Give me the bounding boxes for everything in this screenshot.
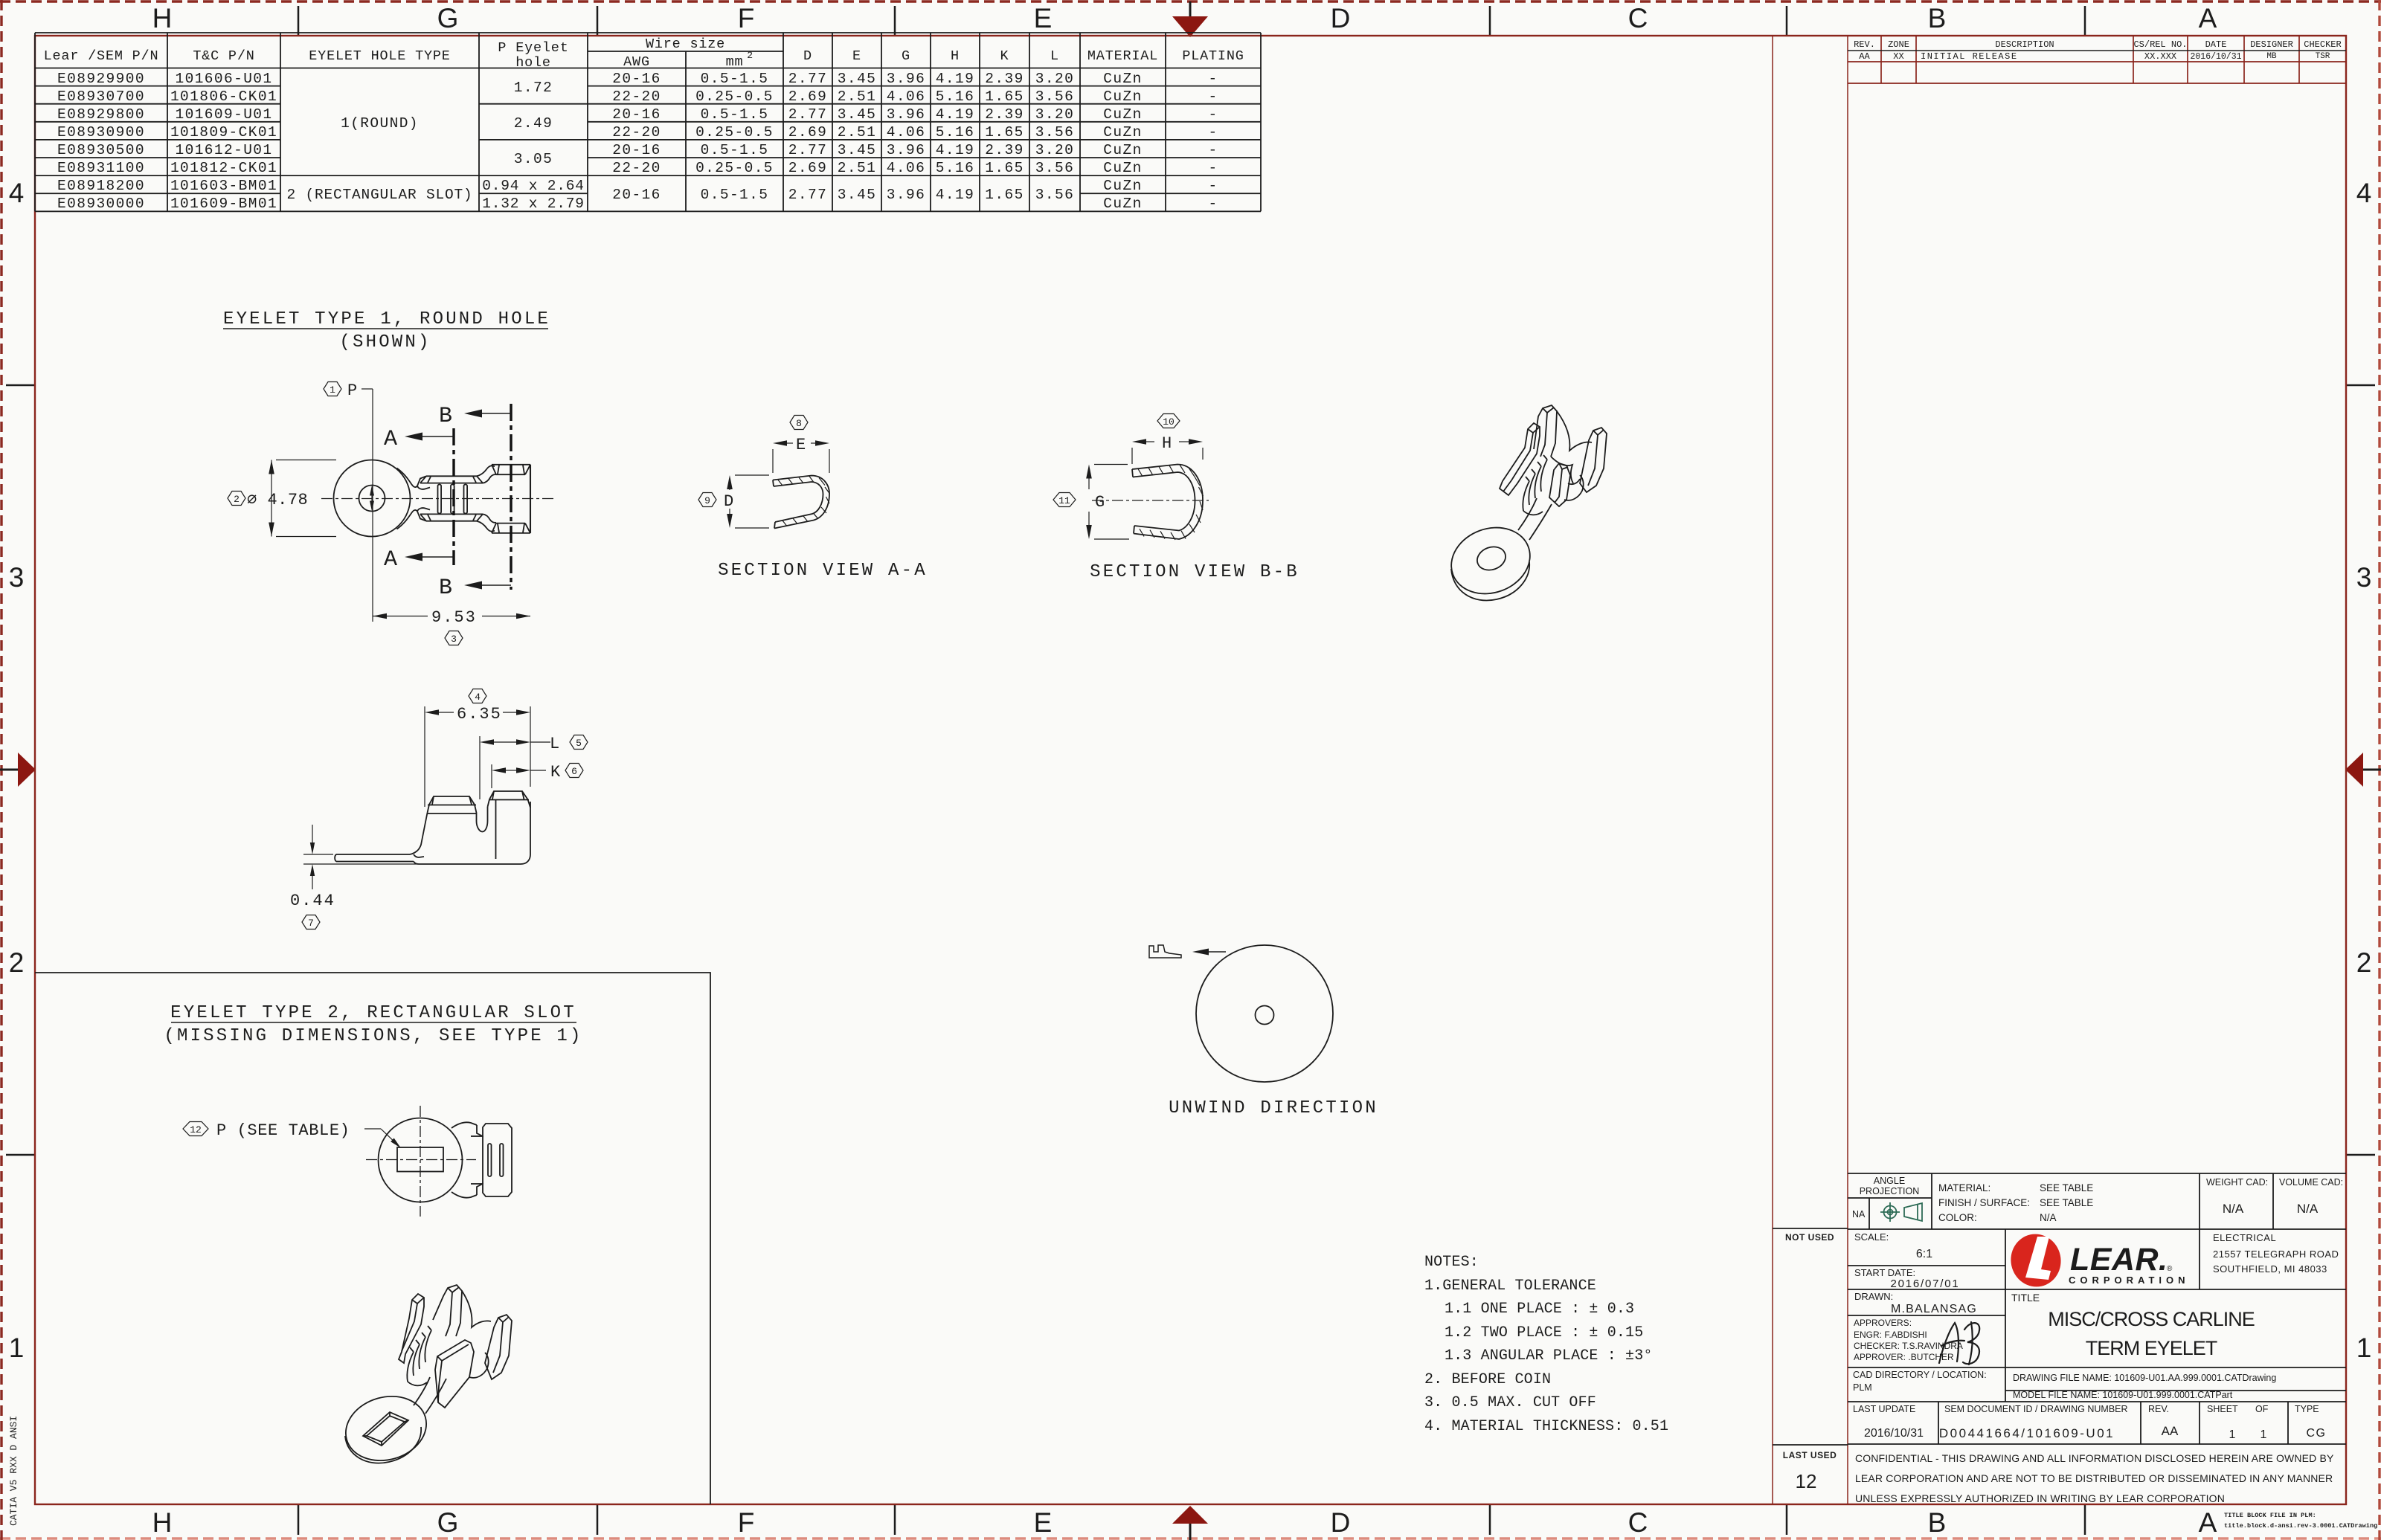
svg-text:2.77: 2.77 [788, 106, 827, 123]
svg-text:CuZn: CuZn [1103, 88, 1142, 105]
svg-text:6: 6 [571, 766, 577, 777]
svg-text:H: H [951, 48, 960, 64]
svg-text:3.56: 3.56 [1035, 88, 1074, 105]
svg-text:CHECKER: T.S.RAVINDRA: CHECKER: T.S.RAVINDRA [1854, 1341, 1963, 1351]
svg-text:INITIAL RELEASE: INITIAL RELEASE [1921, 51, 2018, 62]
svg-text:MISC/CROSS CARLINE: MISC/CROSS CARLINE [2048, 1308, 2255, 1330]
svg-text:3.20: 3.20 [1035, 71, 1074, 87]
svg-text:3.96: 3.96 [887, 106, 925, 123]
svg-text:1.1 ONE PLACE : ± 0.3: 1.1 ONE PLACE : ± 0.3 [1445, 1301, 1634, 1318]
svg-text:4: 4 [475, 692, 481, 703]
svg-text:2.49: 2.49 [514, 115, 553, 132]
svg-text:G: G [437, 3, 459, 33]
svg-text:G: G [1095, 493, 1105, 512]
svg-text:1.65: 1.65 [985, 88, 1024, 105]
svg-text:OF: OF [2255, 1404, 2269, 1414]
svg-text:APPROVERS:: APPROVERS: [1854, 1318, 1912, 1328]
svg-text:2016/10/31: 2016/10/31 [1864, 1427, 1924, 1440]
svg-text:0.25-0.5: 0.25-0.5 [695, 124, 774, 141]
svg-text:3: 3 [2356, 562, 2372, 593]
svg-text:CORPORATION: CORPORATION [2069, 1275, 2190, 1286]
svg-text:E: E [852, 48, 861, 64]
svg-text:B: B [439, 404, 452, 429]
svg-text:N/A: N/A [2297, 1202, 2319, 1216]
svg-text:E: E [1034, 3, 1053, 33]
svg-text:2.39: 2.39 [985, 106, 1024, 123]
svg-text:F: F [738, 3, 755, 33]
svg-text:101612-U01: 101612-U01 [175, 142, 272, 158]
svg-text:K: K [550, 763, 561, 782]
svg-text:LAST UPDATE: LAST UPDATE [1853, 1404, 1915, 1414]
svg-text:L: L [550, 735, 559, 753]
svg-text:CHECKER: CHECKER [2304, 39, 2341, 50]
svg-text:5.16: 5.16 [936, 124, 974, 141]
svg-text:ANGLE: ANGLE [1874, 1176, 1905, 1186]
svg-text:4. MATERIAL THICKNESS: 0.51: 4. MATERIAL THICKNESS: 0.51 [1424, 1418, 1668, 1435]
svg-text:MATERIAL: MATERIAL [1087, 48, 1158, 64]
svg-text:1.2 TWO PLACE : ± 0.15: 1.2 TWO PLACE : ± 0.15 [1445, 1324, 1643, 1341]
svg-text:PROJECTION: PROJECTION [1860, 1186, 1920, 1196]
svg-text:2.69: 2.69 [788, 124, 827, 141]
svg-text:-: - [1208, 196, 1218, 212]
svg-text:CuZn: CuZn [1103, 160, 1142, 176]
svg-text:3.45: 3.45 [838, 187, 876, 203]
svg-text:E08930500: E08930500 [57, 142, 145, 158]
svg-text:(SHOWN): (SHOWN) [339, 332, 431, 352]
svg-text:DESIGNER: DESIGNER [2250, 39, 2293, 50]
svg-text:D00441664/101609-U01: D00441664/101609-U01 [1939, 1426, 2115, 1440]
svg-text:(MISSING DIMENSIONS, SEE TYPE: (MISSING DIMENSIONS, SEE TYPE 1) [164, 1026, 582, 1046]
svg-text:1.65: 1.65 [985, 187, 1024, 203]
svg-text:N/A: N/A [2223, 1202, 2244, 1216]
svg-text:∅ 4.78: ∅ 4.78 [247, 491, 308, 509]
svg-text:B: B [439, 576, 452, 601]
svg-text:CuZn: CuZn [1103, 178, 1142, 194]
svg-text:4.06: 4.06 [887, 88, 925, 105]
svg-text:TSR: TSR [2316, 52, 2330, 61]
svg-text:3.45: 3.45 [838, 106, 876, 123]
svg-text:CuZn: CuZn [1103, 106, 1142, 123]
svg-text:A: A [2199, 3, 2217, 33]
svg-text:2.69: 2.69 [788, 160, 827, 176]
svg-text:CONFIDENTIAL - THIS DRAWING AN: CONFIDENTIAL - THIS DRAWING AND ALL INFO… [1855, 1452, 2334, 1464]
svg-text:4: 4 [9, 178, 25, 208]
svg-text:TITLE: TITLE [2011, 1292, 2040, 1304]
svg-text:3.45: 3.45 [838, 142, 876, 158]
svg-text:2.51: 2.51 [838, 160, 876, 176]
svg-text:G: G [902, 48, 910, 64]
svg-text:101603-BM01: 101603-BM01 [170, 178, 277, 194]
svg-text:2.39: 2.39 [985, 142, 1024, 158]
svg-text:1.65: 1.65 [985, 160, 1024, 176]
svg-text:PLM: PLM [1853, 1382, 1872, 1393]
svg-text:1: 1 [2229, 1428, 2236, 1441]
svg-text:EYELET TYPE 2, RECTANGULAR SLO: EYELET TYPE 2, RECTANGULAR SLOT [170, 1003, 576, 1023]
svg-text:E08931100: E08931100 [57, 160, 145, 176]
svg-text:T&C P/N: T&C P/N [193, 48, 254, 64]
svg-text:K: K [1000, 48, 1009, 64]
svg-text:MATERIAL:: MATERIAL: [1938, 1182, 1990, 1193]
svg-text:0.5-1.5: 0.5-1.5 [701, 106, 769, 123]
svg-text:9: 9 [704, 495, 710, 506]
svg-text:20-16: 20-16 [612, 71, 661, 87]
svg-text:SEM DOCUMENT ID / DRAWING NUMB: SEM DOCUMENT ID / DRAWING NUMBER [1944, 1404, 2128, 1414]
svg-text:D: D [1331, 1507, 1351, 1538]
svg-text:4.19: 4.19 [936, 106, 974, 123]
svg-text:A: A [384, 547, 397, 573]
svg-text:PLATING: PLATING [1182, 48, 1244, 64]
svg-text:4: 4 [2356, 178, 2372, 208]
svg-text:1.3 ANGULAR PLACE : ±3°: 1.3 ANGULAR PLACE : ±3° [1445, 1347, 1653, 1365]
svg-text:1(ROUND): 1(ROUND) [341, 115, 419, 132]
svg-text:START DATE:: START DATE: [1854, 1267, 1915, 1278]
svg-text:D: D [724, 492, 733, 511]
svg-text:UNLESS EXPRESSLY AUTHORIZED IN: UNLESS EXPRESSLY AUTHORIZED IN WRITING B… [1855, 1492, 2225, 1504]
svg-text:C: C [1628, 1507, 1648, 1538]
svg-text:G: G [437, 1507, 459, 1538]
svg-text:SEE TABLE: SEE TABLE [2040, 1182, 2093, 1193]
svg-text:7: 7 [308, 918, 314, 929]
svg-text:L: L [1050, 48, 1059, 64]
svg-text:MB: MB [2266, 52, 2277, 61]
svg-text:101806-CK01: 101806-CK01 [170, 88, 277, 105]
svg-text:-: - [1208, 106, 1218, 123]
svg-text:E08929900: E08929900 [57, 71, 145, 87]
svg-text:UNWIND DIRECTION: UNWIND DIRECTION [1169, 1098, 1378, 1118]
svg-text:4.19: 4.19 [936, 71, 974, 87]
svg-text:1.65: 1.65 [985, 124, 1024, 141]
svg-text:DRAWING FILE NAME: 101609-U01.: DRAWING FILE NAME: 101609-U01.AA.999.000… [2013, 1373, 2276, 1383]
svg-text:0.25-0.5: 0.25-0.5 [695, 160, 774, 176]
svg-text:XX.XXX: XX.XXX [2144, 51, 2176, 62]
svg-text:101809-CK01: 101809-CK01 [170, 124, 277, 141]
svg-text:3.20: 3.20 [1035, 142, 1074, 158]
svg-text:1.GENERAL TOLERANCE: 1.GENERAL TOLERANCE [1424, 1278, 1596, 1295]
svg-text:5.16: 5.16 [936, 160, 974, 176]
svg-text:SHEET: SHEET [2207, 1404, 2238, 1414]
svg-text:2.77: 2.77 [788, 71, 827, 87]
svg-text:E: E [796, 436, 806, 454]
svg-text:-: - [1208, 142, 1218, 158]
svg-text:CAD DIRECTORY / LOCATION:: CAD DIRECTORY / LOCATION: [1853, 1370, 1987, 1380]
svg-text:2.77: 2.77 [788, 187, 827, 203]
svg-text:8: 8 [796, 418, 802, 429]
svg-text:LAST USED: LAST USED [1783, 1450, 1837, 1460]
svg-text:REV.: REV. [2148, 1404, 2169, 1414]
svg-text:22-20: 22-20 [612, 88, 661, 105]
svg-text:22-20: 22-20 [612, 124, 661, 141]
svg-text:NOT USED: NOT USED [1785, 1232, 1834, 1243]
svg-text:FINISH / SURFACE:: FINISH / SURFACE: [1938, 1197, 2030, 1208]
svg-text:SECTION VIEW B-B: SECTION VIEW B-B [1090, 562, 1299, 582]
svg-text:REV.: REV. [1854, 39, 1875, 50]
svg-text:P Eyelet: P Eyelet [498, 40, 568, 56]
svg-text:2.77: 2.77 [788, 142, 827, 158]
svg-text:-: - [1208, 160, 1218, 176]
svg-text:®: ® [2167, 1265, 2173, 1273]
svg-text:Lear /SEM P/N: Lear /SEM P/N [44, 48, 159, 64]
svg-text:E08930900: E08930900 [57, 124, 145, 141]
svg-text:NOTES:: NOTES: [1424, 1254, 1479, 1271]
svg-text:CG: CG [2307, 1427, 2327, 1440]
svg-text:SECTION VIEW A-A: SECTION VIEW A-A [718, 561, 928, 581]
svg-text:NA: NA [1852, 1209, 1866, 1220]
svg-text:3.45: 3.45 [838, 71, 876, 87]
svg-text:2 (RECTANGULAR SLOT): 2 (RECTANGULAR SLOT) [286, 187, 472, 203]
svg-text:CuZn: CuZn [1103, 142, 1142, 158]
svg-text:2: 2 [9, 947, 25, 978]
svg-text:2. BEFORE COIN: 2. BEFORE COIN [1424, 1371, 1551, 1388]
svg-text:4.06: 4.06 [887, 160, 925, 176]
svg-text:101609-BM01: 101609-BM01 [170, 196, 277, 212]
svg-text:0.5-1.5: 0.5-1.5 [701, 142, 769, 158]
svg-text:D: D [803, 48, 812, 64]
svg-text:DESCRIPTION: DESCRIPTION [1995, 39, 2054, 50]
svg-text:3: 3 [9, 562, 25, 593]
svg-text:VOLUME CAD:: VOLUME CAD: [2279, 1177, 2343, 1188]
svg-text:EYELET HOLE TYPE: EYELET HOLE TYPE [309, 48, 450, 64]
svg-text:20-16: 20-16 [612, 106, 661, 123]
svg-text:3: 3 [451, 634, 457, 645]
svg-text:E08918200: E08918200 [57, 178, 145, 194]
svg-text:0.44: 0.44 [290, 892, 335, 910]
svg-text:1: 1 [9, 1333, 25, 1363]
svg-text:P (SEE TABLE): P (SEE TABLE) [216, 1121, 350, 1140]
svg-text:XX: XX [1893, 51, 1903, 62]
svg-text:101812-CK01: 101812-CK01 [170, 160, 277, 176]
svg-text:2: 2 [234, 494, 240, 505]
svg-text:F: F [738, 1507, 755, 1538]
svg-text:COLOR:: COLOR: [1938, 1212, 1977, 1223]
svg-text:2016/10/31: 2016/10/31 [2190, 52, 2241, 62]
svg-text:CATIA V5 RXX D ANSI: CATIA V5 RXX D ANSI [8, 1416, 19, 1526]
svg-text:20-16: 20-16 [612, 187, 661, 203]
svg-text:4.19: 4.19 [936, 142, 974, 158]
svg-text:2.39: 2.39 [985, 71, 1024, 87]
svg-text:DRAWN:: DRAWN: [1854, 1291, 1893, 1302]
svg-text:SEE TABLE: SEE TABLE [2040, 1197, 2093, 1208]
svg-text:title.block.d-ansi.rev-3.0001.: title.block.d-ansi.rev-3.0001.CATDrawing [2224, 1522, 2377, 1530]
svg-text:6:1: 6:1 [1916, 1248, 1932, 1260]
svg-text:M.BALANSAG: M.BALANSAG [1891, 1303, 1977, 1315]
svg-text:LEAR CORPORATION AND ARE NOT T: LEAR CORPORATION AND ARE NOT TO BE DISTR… [1855, 1472, 2333, 1484]
svg-text:10: 10 [1163, 416, 1175, 428]
svg-text:Wire size: Wire size [646, 36, 725, 52]
svg-text:21557 TELEGRAPH ROAD: 21557 TELEGRAPH ROAD [2213, 1249, 2339, 1260]
svg-text:E: E [1034, 1507, 1053, 1538]
svg-text:E08930000: E08930000 [57, 196, 145, 212]
svg-text:TERM EYELET: TERM EYELET [2086, 1337, 2217, 1359]
svg-text:N/A: N/A [2040, 1212, 2057, 1223]
svg-text:1: 1 [330, 384, 335, 396]
svg-text:TYPE: TYPE [2295, 1404, 2319, 1414]
svg-text:D: D [1331, 3, 1351, 33]
svg-text:2016/07/01: 2016/07/01 [1890, 1278, 1959, 1290]
svg-text:2.51: 2.51 [838, 88, 876, 105]
svg-text:3.96: 3.96 [887, 71, 925, 87]
svg-text:hole: hole [515, 55, 551, 71]
svg-text:20-16: 20-16 [612, 142, 661, 158]
svg-text:AWG: AWG [623, 54, 650, 70]
svg-text:0.94 x 2.64: 0.94 x 2.64 [482, 178, 585, 194]
svg-text:5: 5 [576, 738, 582, 749]
svg-text:E08929800: E08929800 [57, 106, 145, 123]
svg-text:B: B [1928, 3, 1947, 33]
svg-text:2.69: 2.69 [788, 88, 827, 105]
svg-text:3.05: 3.05 [514, 151, 553, 167]
svg-text:11: 11 [1058, 495, 1070, 506]
svg-text:H: H [152, 3, 173, 33]
svg-text:AA: AA [1859, 51, 1870, 62]
svg-text:mm: mm [726, 54, 744, 70]
svg-text:SOUTHFIELD, MI 48033: SOUTHFIELD, MI 48033 [2213, 1263, 2327, 1275]
svg-text:EYELET TYPE 1, ROUND HOLE: EYELET TYPE 1, ROUND HOLE [223, 309, 550, 329]
svg-text:1: 1 [2356, 1333, 2372, 1363]
svg-text:CuZn: CuZn [1103, 124, 1142, 141]
svg-text:3.56: 3.56 [1035, 124, 1074, 141]
svg-text:TITLE BLOCK FILE IN PLM:: TITLE BLOCK FILE IN PLM: [2224, 1512, 2316, 1519]
svg-text:4.06: 4.06 [887, 124, 925, 141]
svg-text:P: P [347, 381, 357, 400]
svg-text:C: C [1628, 3, 1648, 33]
svg-text:0.5-1.5: 0.5-1.5 [701, 187, 769, 203]
svg-text:LEAR.: LEAR. [2070, 1242, 2168, 1278]
svg-text:A: A [384, 427, 397, 452]
svg-text:1.32 x 2.79: 1.32 x 2.79 [482, 196, 585, 212]
svg-text:E08930700: E08930700 [57, 88, 145, 105]
svg-text:0.5-1.5: 0.5-1.5 [701, 71, 769, 87]
svg-text:ENGR: F.ABDISHI: ENGR: F.ABDISHI [1854, 1330, 1927, 1340]
svg-text:-: - [1208, 124, 1218, 141]
svg-text:H: H [152, 1507, 173, 1538]
svg-text:5.16: 5.16 [936, 88, 974, 105]
svg-text:-: - [1208, 178, 1218, 194]
svg-text:9.53: 9.53 [431, 608, 477, 627]
svg-text:3.56: 3.56 [1035, 160, 1074, 176]
svg-text:3.96: 3.96 [887, 142, 925, 158]
svg-text:2: 2 [747, 50, 753, 61]
svg-text:DATE: DATE [2205, 39, 2227, 50]
svg-text:3. 0.5 MAX. CUT OFF: 3. 0.5 MAX. CUT OFF [1424, 1394, 1596, 1411]
svg-text:6.35: 6.35 [457, 705, 502, 724]
svg-text:3.20: 3.20 [1035, 106, 1074, 123]
svg-text:-: - [1208, 88, 1218, 105]
svg-text:2: 2 [2356, 947, 2372, 978]
svg-text:1: 1 [2260, 1428, 2267, 1441]
svg-text:4.19: 4.19 [936, 187, 974, 203]
svg-text:ZONE: ZONE [1888, 39, 1909, 50]
svg-text:0.25-0.5: 0.25-0.5 [695, 88, 774, 105]
svg-text:2.51: 2.51 [838, 124, 876, 141]
svg-text:MODEL FILE NAME: 101609-U01.99: MODEL FILE NAME: 101609-U01.999.0001.CAT… [2013, 1390, 2233, 1400]
svg-text:3.56: 3.56 [1035, 187, 1074, 203]
svg-text:-: - [1208, 71, 1218, 87]
svg-text:12: 12 [190, 1124, 202, 1135]
svg-text:CuZn: CuZn [1103, 71, 1142, 87]
svg-text:1.72: 1.72 [514, 80, 553, 96]
svg-text:SCALE:: SCALE: [1854, 1231, 1889, 1243]
svg-text:CS/REL NO.: CS/REL NO. [2133, 39, 2187, 50]
svg-text:B: B [1928, 1507, 1947, 1538]
svg-text:3.96: 3.96 [887, 187, 925, 203]
svg-text:WEIGHT CAD:: WEIGHT CAD: [2206, 1177, 2268, 1188]
svg-text:12: 12 [1796, 1470, 1817, 1492]
svg-text:CuZn: CuZn [1103, 196, 1142, 212]
svg-text:ELECTRICAL: ELECTRICAL [2213, 1232, 2276, 1243]
svg-text:AA: AA [2162, 1424, 2179, 1438]
svg-text:H: H [1162, 434, 1172, 453]
svg-text:101609-U01: 101609-U01 [175, 106, 272, 123]
svg-text:A: A [2199, 1507, 2217, 1538]
svg-text:101606-U01: 101606-U01 [175, 71, 272, 87]
svg-text:22-20: 22-20 [612, 160, 661, 176]
